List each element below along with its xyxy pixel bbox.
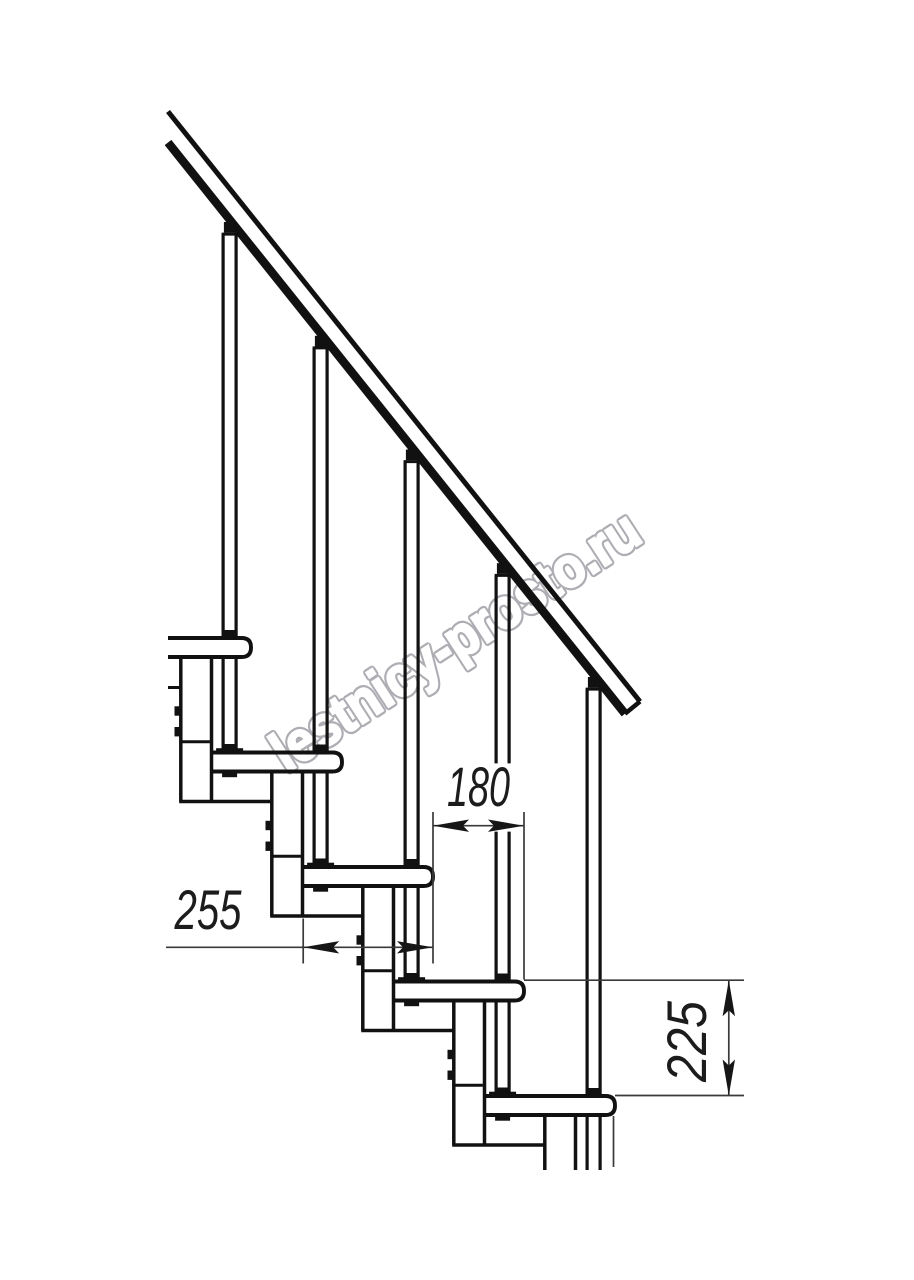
svg-text:225: 225 [655, 1000, 718, 1083]
svg-text:255: 255 [174, 878, 242, 941]
svg-text:180: 180 [447, 755, 510, 818]
